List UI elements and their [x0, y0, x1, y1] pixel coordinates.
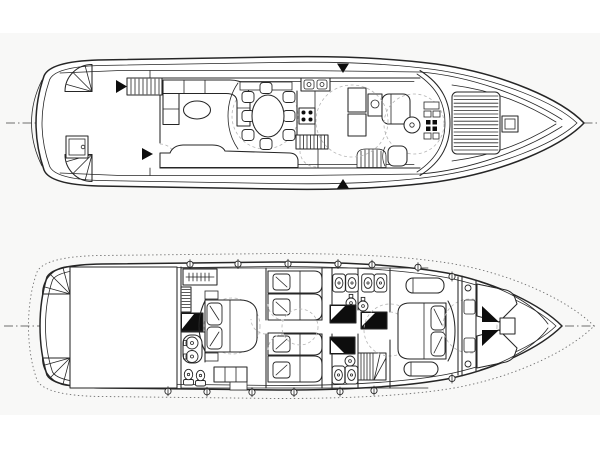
pillow: [207, 303, 222, 325]
stove: [299, 108, 315, 124]
sun-pad: [452, 92, 500, 154]
scanned-deck-plan-page: [0, 0, 600, 450]
refrigerator: [348, 88, 366, 112]
nightstand: [205, 353, 218, 361]
locker: [464, 300, 475, 314]
master-bed: [199, 299, 257, 353]
helm-seat: [388, 146, 407, 166]
deck-plans-drawing: [0, 0, 600, 450]
pillow: [431, 332, 445, 356]
settee: [404, 362, 438, 376]
shower-stall: [361, 312, 387, 329]
shower-stall: [330, 337, 355, 354]
toilet: [184, 369, 194, 385]
crew-table: [500, 318, 515, 334]
engine-room: [70, 267, 181, 388]
toilet: [196, 370, 206, 386]
pillow: [207, 327, 222, 349]
anchor-windlass: [502, 116, 518, 132]
hanging-locker: [181, 287, 191, 312]
shower-stall: [330, 305, 356, 323]
coffee-table: [184, 101, 211, 119]
sink: [186, 337, 198, 349]
wardrobe: [183, 269, 217, 285]
locker: [464, 338, 475, 352]
washbasin: [345, 366, 358, 384]
toilet: [332, 366, 345, 384]
toilet: [333, 274, 346, 292]
guest-cabin-port: [268, 271, 322, 320]
sink: [186, 351, 198, 363]
dining-table: [252, 95, 284, 137]
guest-cabin-starboard: [268, 333, 322, 382]
deck-hatch: [66, 136, 88, 158]
washbasin: [346, 274, 359, 292]
toilet: [362, 274, 375, 292]
staircase: [358, 353, 386, 380]
washbasin: [374, 274, 387, 292]
steering-wheel: [404, 117, 420, 133]
nightstand: [205, 291, 218, 299]
settee: [406, 278, 444, 293]
